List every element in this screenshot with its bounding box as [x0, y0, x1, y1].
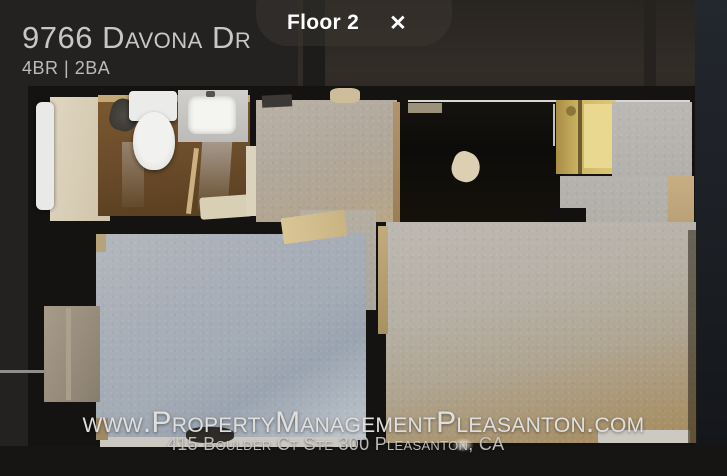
- hallway-carpet: [256, 100, 397, 222]
- close-icon[interactable]: ✕: [389, 13, 407, 34]
- hallway-threshold-mark: [330, 88, 360, 103]
- landing-carpet-upper: [612, 102, 692, 180]
- closet-yellow-knob: [566, 106, 576, 116]
- sink-basin: [188, 96, 236, 134]
- sink-faucet: [206, 91, 215, 97]
- dark-room-debris: [408, 103, 442, 113]
- property-specs: 4BR | 2BA: [22, 58, 251, 79]
- property-address: 9766 Davona Dr: [22, 22, 251, 55]
- closet-left-seam: [66, 308, 71, 400]
- bedroom-left-corner-trim: [96, 234, 106, 252]
- toilet-bowl: [133, 112, 175, 170]
- closet-yellow-inner: [584, 104, 612, 168]
- bathroom-door-frame: [246, 146, 256, 216]
- floorplan-viewer: Floor 2 ✕ 9766 Davona Dr 4BR | 2BA www.P…: [0, 0, 727, 476]
- bedroom-right-left-wall: [378, 226, 388, 334]
- floor-label[interactable]: Floor 2: [287, 11, 359, 35]
- watermark-address: 415 Boulder Ct Ste 300 Pleasanton, CA: [167, 434, 504, 455]
- property-title-block: 9766 Davona Dr 4BR | 2BA: [22, 22, 251, 79]
- dark-room: [400, 96, 565, 226]
- bathtub-edge: [36, 102, 54, 210]
- dark-room-edge-highlight: [553, 104, 555, 146]
- closet-left: [44, 306, 100, 402]
- floor-selector: Floor 2 ✕: [287, 9, 407, 37]
- bedroom-right-edge-shadow: [688, 230, 697, 443]
- hallway-dark-mark: [262, 94, 293, 108]
- closet-yellow-seam: [578, 100, 582, 174]
- exterior-wall-edge: [0, 370, 46, 373]
- bath-mat: [199, 194, 252, 220]
